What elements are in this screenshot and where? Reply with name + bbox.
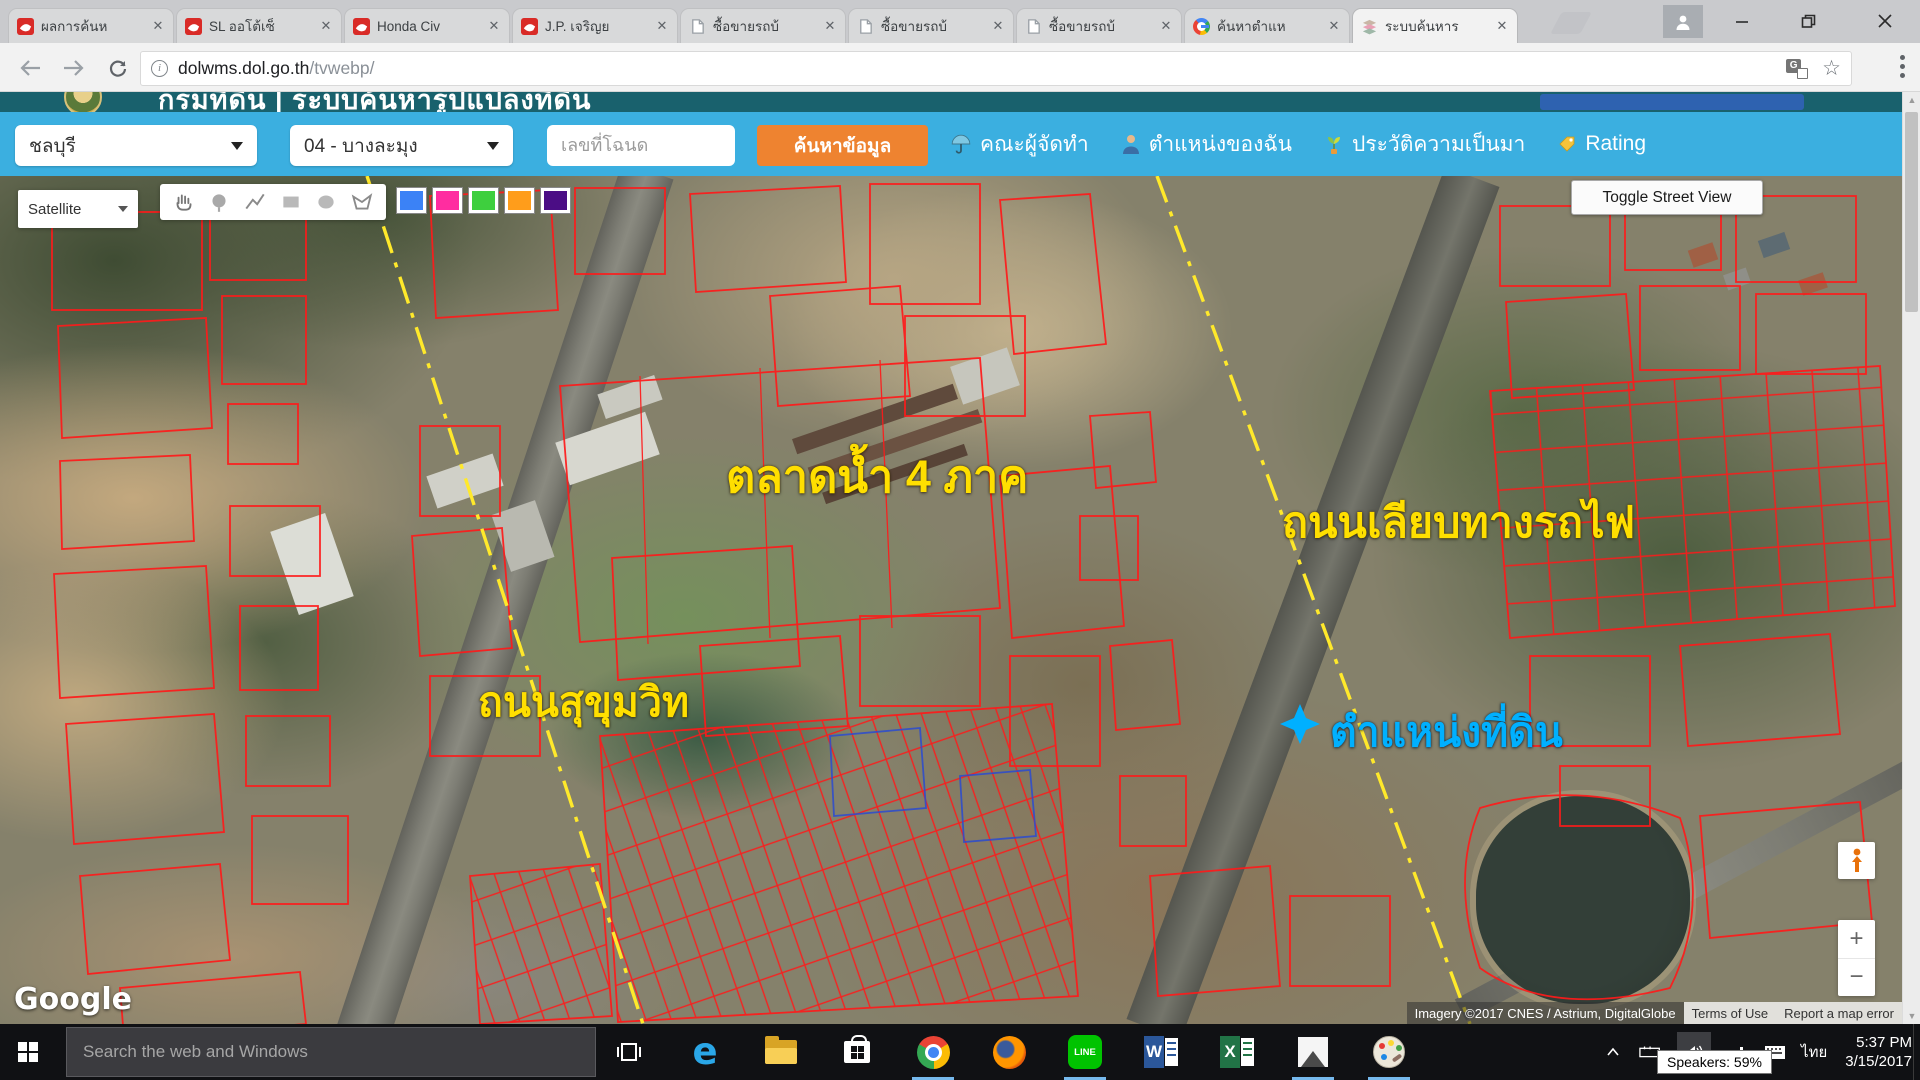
desktop-screen: ผลการค้นห ✕ SL ออโต้เซ็ ✕ Honda Civ ✕ J.… [0,0,1920,1080]
task-view-button[interactable] [606,1024,652,1080]
page-scrollbar[interactable]: ▲ ▼ [1902,92,1920,1024]
scrollbar-thumb[interactable] [1905,112,1918,312]
zoom-out-button[interactable]: − [1838,959,1875,997]
menu-item-label: Rating [1585,132,1646,156]
excel-icon: X [1220,1036,1254,1068]
map-type-value: Satellite [28,201,81,218]
bookmark-star-icon[interactable]: ☆ [1822,59,1841,79]
close-window-button[interactable] [1850,0,1920,42]
google-favicon [1193,18,1210,35]
line-taskbar-button[interactable]: LINE [1062,1024,1108,1080]
taskbar-clock[interactable]: 5:37 PM 3/15/2017 [1845,1033,1912,1071]
province-value: ชลบุรี [29,131,76,161]
profile-button[interactable] [1663,5,1703,38]
tab-title: J.P. เจริญย [545,15,655,37]
show-desktop-button[interactable] [1913,1024,1920,1080]
tab-title: ค้นหาตำแห [1217,15,1327,37]
site-header-bar: กรมที่ดิน | ระบบค้นหารูปแปลงที่ดิน [0,92,1902,112]
tab-close-icon[interactable]: ✕ [151,19,165,33]
drawing-toolbar [160,184,386,220]
browser-tab[interactable]: ผลการค้นห ✕ [8,8,174,43]
edge-icon: e [692,1034,717,1070]
new-tab-button[interactable] [1550,12,1592,34]
clock-date: 3/15/2017 [1845,1053,1912,1070]
province-select[interactable]: ชลบุรี [15,125,257,166]
header-menu: คณะผู้จัดทำ ตำแหน่งของฉัน ประวัติความเป็… [950,112,1646,176]
word-taskbar-button[interactable]: W [1138,1024,1184,1080]
polygon-tool-icon[interactable] [350,190,374,214]
tab-title: ซื้อขายรถบ้ [881,15,991,37]
page-favicon [1025,18,1042,35]
toggle-street-view-button[interactable]: Toggle Street View [1571,180,1763,215]
windows-taskbar: Search the web and Windows e LINE W [0,1024,1920,1080]
map-label-railway-road: ถนนเลียบทางรถไฟ [1282,488,1635,556]
pegman-icon [1849,848,1865,874]
browser-toolbar: i dolwms.dol.go.th/tvwebp/ G ☆ [0,43,1920,92]
color-swatches [396,187,571,214]
menu-item-credits[interactable]: คณะผู้จัดทำ [950,128,1089,161]
parcel-overlay [0,176,1902,1024]
color-swatch-purple[interactable] [540,187,571,214]
chrome-taskbar-button[interactable] [910,1024,956,1080]
clock-time: 5:37 PM [1856,1034,1912,1051]
tab-close-icon[interactable]: ✕ [655,19,669,33]
marker-tool-icon[interactable] [207,190,231,214]
car-favicon [185,18,202,35]
pegman-control[interactable] [1838,842,1875,879]
layers-favicon [1361,18,1378,35]
tab-title: ซื้อขายรถบ้ [1049,15,1159,37]
tab-close-icon[interactable]: ✕ [991,19,1005,33]
pan-hand-icon[interactable] [172,190,196,214]
dol-logo [64,92,102,112]
terms-of-use-link[interactable]: Terms of Use [1684,1002,1777,1024]
land-position-star-icon [1280,704,1320,744]
tag-icon [1557,134,1577,154]
store-icon [844,1041,870,1063]
browser-tab[interactable]: SL ออโต้เซ็ ✕ [176,8,342,43]
photos-icon [1298,1037,1328,1067]
minimize-button[interactable] [1712,0,1772,42]
speakers-volume-tooltip: Speakers: 59% [1657,1050,1772,1074]
tab-title: ระบบค้นหาร [1385,15,1495,37]
file-explorer-taskbar-button[interactable] [758,1024,804,1080]
person-icon [1121,133,1141,155]
tab-list: ผลการค้นห ✕ SL ออโต้เซ็ ✕ Honda Civ ✕ J.… [8,8,1520,43]
circle-tool-icon[interactable] [314,190,338,214]
report-map-error-link[interactable]: Report a map error [1776,1002,1902,1024]
car-favicon [521,18,538,35]
tab-title: Honda Civ [377,19,487,34]
translate-icon[interactable]: G [1786,59,1808,79]
menu-item-history[interactable]: ประวัติความเป็นมา [1324,128,1525,161]
menu-item-label: คณะผู้จัดทำ [980,128,1089,161]
word-icon: W [1144,1036,1178,1068]
tab-title: ซื้อขายรถบ้ [713,15,823,37]
chrome-menu-icon[interactable] [1900,55,1906,78]
map-canvas[interactable]: ตลาดน้ำ 4 ภาค ถนนเลียบทางรถไฟ ถนนสุขุมวิ… [0,176,1902,1024]
browser-tab[interactable]: J.P. เจริญย ✕ [512,8,678,43]
chevron-down-icon [231,142,243,150]
menu-item-label: ประวัติความเป็นมา [1352,128,1525,161]
restore-button[interactable] [1778,0,1838,42]
map-label-land-position: ตำแหน่งที่ดิน [1330,700,1563,765]
map-label-market: ตลาดน้ำ 4 ภาค [726,440,1028,512]
excel-taskbar-button[interactable]: X [1214,1024,1260,1080]
page-info-icon[interactable]: i [151,60,168,77]
scroll-up-icon[interactable]: ▲ [1903,92,1920,108]
map-label-sukhumvit: ถนนสุขุมวิท [478,670,689,735]
line-icon: LINE [1068,1035,1102,1069]
menu-item-label: ตำแหน่งของฉัน [1149,128,1292,161]
taskbar-search-box[interactable]: Search the web and Windows [66,1027,596,1077]
zoom-control: + − [1838,920,1875,996]
color-swatch-orange[interactable] [504,187,535,214]
menu-item-my-location[interactable]: ตำแหน่งของฉัน [1121,128,1292,161]
imagery-credit: Imagery ©2017 CNES / Astrium, DigitalGlo… [1407,1002,1684,1024]
chrome-icon [917,1036,950,1069]
start-button[interactable] [0,1024,56,1080]
file-explorer-icon [765,1040,797,1064]
rectangle-tool-icon[interactable] [279,190,303,214]
search-controls-bar: ชลบุรี 04 - บางละมุง ค้นหาข้อมูล คณะผู้จ… [0,112,1902,176]
photos-taskbar-button[interactable] [1290,1024,1336,1080]
page-favicon [689,18,706,35]
reload-icon[interactable] [102,52,134,84]
polyline-tool-icon[interactable] [243,190,267,214]
browser-tab[interactable]: ซื้อขายรถบ้ ✕ [680,8,846,43]
paint-icon [1373,1036,1405,1068]
browser-tab[interactable]: ค้นหาตำแห ✕ [1184,8,1350,43]
deed-number-input[interactable] [547,125,735,166]
car-favicon [17,18,34,35]
district-value: 04 - บางละมุง [304,131,418,161]
tab-close-icon[interactable]: ✕ [319,19,333,33]
firefox-icon [993,1036,1026,1069]
color-swatch-pink[interactable] [432,187,463,214]
tab-close-icon[interactable]: ✕ [1495,19,1509,33]
firefox-taskbar-button[interactable] [986,1024,1032,1080]
chevron-down-icon [118,206,128,212]
color-swatch-blue[interactable] [396,187,427,214]
umbrella-icon [950,133,972,155]
map-type-select[interactable]: Satellite [18,190,138,228]
page-favicon [857,18,874,35]
site-title: กรมที่ดิน | ระบบค้นหารูปแปลงที่ดิน [158,92,591,112]
map-attribution: Imagery ©2017 CNES / Astrium, DigitalGlo… [1407,1002,1902,1024]
browser-tab[interactable]: ซื้อขายรถบ้ ✕ [1016,8,1182,43]
tab-title: ผลการค้นห [41,15,151,37]
edge-taskbar-button[interactable]: e [682,1024,728,1080]
browser-tab[interactable]: ซื้อขายรถบ้ ✕ [848,8,1014,43]
person-silhouette-icon [1673,12,1693,32]
tray-chevron-icon[interactable] [1601,1032,1625,1072]
scroll-down-icon[interactable]: ▼ [1903,1008,1920,1024]
store-taskbar-button[interactable] [834,1024,880,1080]
tab-close-icon[interactable]: ✕ [1159,19,1173,33]
back-icon[interactable] [14,52,46,84]
browser-tab-active[interactable]: ระบบค้นหาร ✕ [1352,8,1518,43]
color-swatch-green[interactable] [468,187,499,214]
taskbar-search-placeholder: Search the web and Windows [83,1042,308,1062]
address-bar[interactable]: i dolwms.dol.go.th/tvwebp/ G ☆ [140,51,1852,86]
zoom-in-button[interactable]: + [1838,920,1875,959]
tab-close-icon[interactable]: ✕ [487,19,501,33]
forward-icon[interactable] [58,52,90,84]
browser-tabstrip: ผลการค้นห ✕ SL ออโต้เซ็ ✕ Honda Civ ✕ J.… [0,0,1920,43]
district-select[interactable]: 04 - บางละมุง [290,125,513,166]
paint-taskbar-button[interactable] [1366,1024,1412,1080]
search-data-button[interactable]: ค้นหาข้อมูล [757,125,928,166]
car-favicon [353,18,370,35]
url-text: dolwms.dol.go.th/tvwebp/ [178,58,375,79]
google-logo: Google [14,982,132,1017]
header-cutoff-button[interactable] [1540,94,1804,110]
menu-item-rating[interactable]: Rating [1557,132,1646,156]
windows-logo-icon [18,1042,38,1062]
seedling-icon [1324,133,1344,155]
task-view-icon [615,1040,643,1064]
tab-close-icon[interactable]: ✕ [823,19,837,33]
tab-close-icon[interactable]: ✕ [1327,19,1341,33]
chevron-down-icon [487,142,499,150]
taskbar-apps: e LINE W X [606,1024,1412,1080]
language-indicator[interactable]: ไทย [1801,1040,1827,1064]
browser-tab[interactable]: Honda Civ ✕ [344,8,510,43]
tab-title: SL ออโต้เซ็ [209,15,319,37]
